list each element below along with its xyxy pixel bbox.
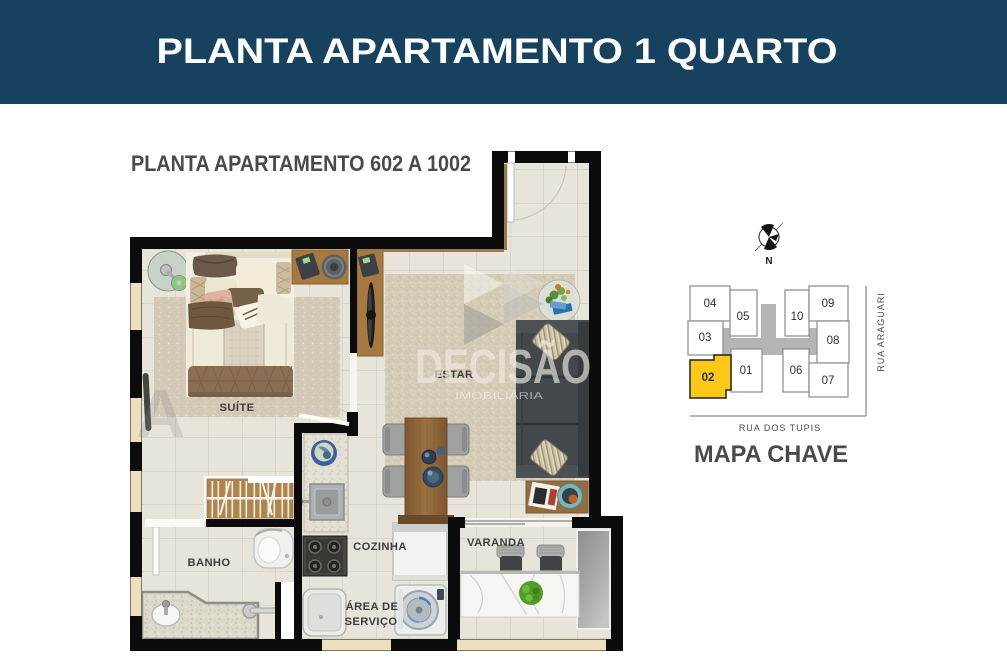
svg-text:PLANTA APARTAMENTO 1 QUARTO: PLANTA APARTAMENTO 1 QUARTO	[157, 32, 838, 71]
svg-text:06: 06	[790, 365, 803, 377]
svg-text:03: 03	[699, 332, 712, 344]
svg-text:A: A	[136, 376, 185, 452]
svg-text:N: N	[765, 256, 772, 267]
svg-text:09: 09	[822, 298, 835, 310]
svg-text:IMOBILIÁRIA: IMOBILIÁRIA	[455, 389, 543, 402]
svg-text:05: 05	[737, 311, 750, 323]
svg-text:BANHO: BANHO	[187, 557, 230, 569]
svg-text:MAPA CHAVE: MAPA CHAVE	[694, 441, 848, 468]
svg-text:07: 07	[822, 375, 835, 387]
svg-text:08: 08	[827, 335, 840, 347]
svg-text:02: 02	[702, 372, 715, 384]
svg-text:DECISÃO: DECISÃO	[415, 339, 591, 394]
svg-text:RUA DOS TUPIS: RUA DOS TUPIS	[739, 423, 821, 433]
svg-text:RUA ARAGUARI: RUA ARAGUARI	[876, 292, 886, 372]
svg-text:COZINHA: COZINHA	[353, 541, 407, 553]
svg-text:01: 01	[740, 365, 753, 377]
svg-text:ÁREA DE: ÁREA DE	[346, 600, 399, 613]
svg-text:04: 04	[704, 298, 717, 310]
svg-text:SERVIÇO: SERVIÇO	[345, 616, 398, 628]
svg-text:VARANDA: VARANDA	[467, 537, 525, 549]
svg-text:SUÍTE: SUÍTE	[220, 401, 255, 414]
svg-text:10: 10	[791, 311, 804, 323]
svg-text:PLANTA APARTAMENTO 602 A 1002: PLANTA APARTAMENTO 602 A 1002	[131, 151, 471, 176]
